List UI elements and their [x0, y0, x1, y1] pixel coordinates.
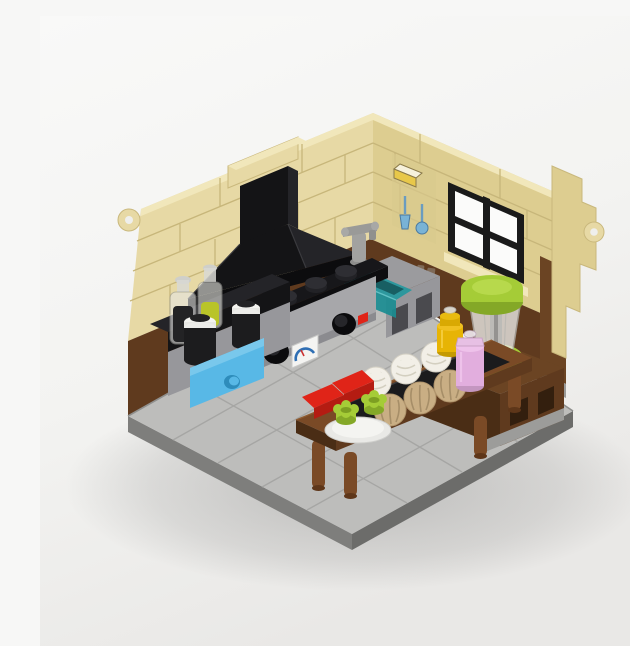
processor-lid: [461, 275, 523, 315]
drawer-knob: [229, 377, 239, 386]
tan-roll: [404, 382, 436, 414]
table-leg: [344, 452, 357, 499]
pink-jar: [456, 331, 484, 393]
white-roll: [391, 354, 421, 384]
render-canvas: [40, 16, 630, 646]
stove-knob-right: [332, 313, 356, 335]
table-leg: [312, 440, 325, 491]
hood-chimney-side: [288, 166, 298, 229]
table-leg: [474, 416, 487, 459]
black-jar-1: [184, 314, 216, 366]
right-clip-ring: [584, 222, 604, 242]
lego-kitchen-photo: Isometric product render of a LEGO minia…: [40, 16, 630, 646]
